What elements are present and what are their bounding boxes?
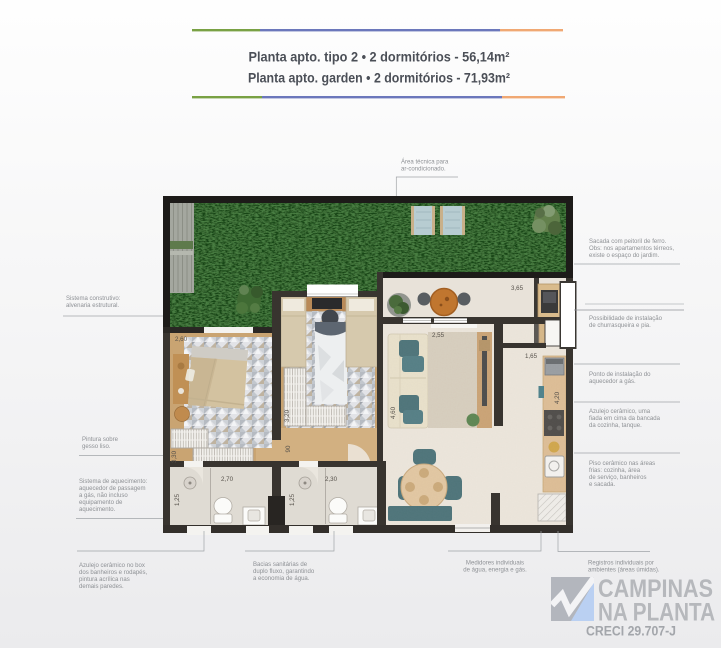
svg-text:4,20: 4,20 (554, 391, 561, 404)
svg-text:Planta apto. garden • 2 dormit: Planta apto. garden • 2 dormitórios - 71… (248, 70, 510, 86)
svg-text:3,30: 3,30 (171, 450, 178, 463)
svg-text:Planta apto. tipo 2 • 2 dormit: Planta apto. tipo 2 • 2 dormitórios - 56… (249, 49, 510, 65)
svg-text:2,55: 2,55 (432, 332, 445, 339)
svg-text:CRECI 29.707-J: CRECI 29.707-J (586, 624, 676, 639)
svg-text:2,60: 2,60 (175, 336, 188, 343)
svg-text:90: 90 (285, 445, 292, 452)
svg-text:3,20: 3,20 (284, 409, 291, 422)
svg-text:2,30: 2,30 (325, 476, 338, 483)
svg-text:2,70: 2,70 (221, 476, 234, 483)
svg-text:1,25: 1,25 (174, 493, 181, 506)
svg-text:1,65: 1,65 (525, 353, 538, 360)
svg-text:Medidores individuaisde água,: Medidores individuaisde água, energia e … (463, 561, 527, 574)
svg-text:Bacias sanitárias deduplo flux: Bacias sanitárias deduplo fluxo, garanti… (253, 562, 315, 582)
svg-text:Sistema construtivo:alvenaria: Sistema construtivo:alvenaria estrutural… (66, 296, 121, 309)
svg-text:4,60: 4,60 (390, 406, 397, 419)
svg-text:Registros individuais porambie: Registros individuais porambientes (área… (588, 561, 660, 574)
svg-text:NA PLANTA: NA PLANTA (598, 599, 715, 627)
svg-text:3,65: 3,65 (511, 285, 524, 292)
svg-text:1,25: 1,25 (289, 493, 296, 506)
